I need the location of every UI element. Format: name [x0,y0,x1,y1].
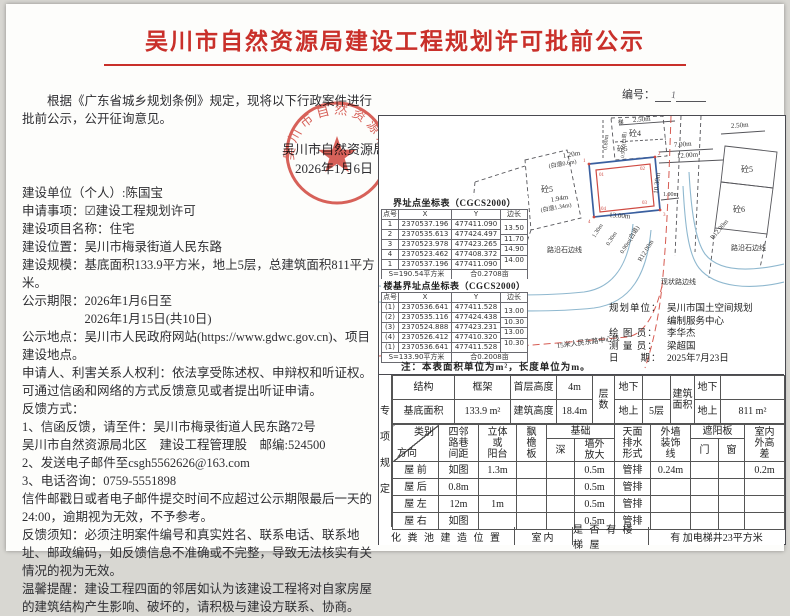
table-title: 楼基界址点坐标表（CGCS2000） [381,279,528,292]
cell: 10.30 [501,318,527,329]
col-header: 遮阳板 [691,425,745,439]
title-underline [104,64,686,66]
cell: 0.2m [745,462,785,479]
cell: 4 [382,250,399,260]
field-line: 吴川市自然资源局北区 建设工程管理股 邮编:524500 [22,436,380,454]
dim-label: 13.00m [609,211,631,220]
table-footer: S=190.54平方米 合0.2708亩 [382,270,528,280]
cell [651,479,691,496]
cell: 18.4m [557,400,593,424]
point-label: 01 [599,173,605,178]
col-header: 深 [547,439,575,462]
septic-stairs-row: 化 粪 池 建 造 位 置 室内 是 否 有 楼 梯 屋 有 加电梯井23平方米 [379,527,784,545]
cell: 2 [382,230,399,240]
cell [547,462,575,479]
cell: 477424.497 [452,230,501,240]
field-line: 2026年1月15日(共10日) [22,310,380,328]
stairs-label: 是 否 有 楼 梯 屋 [573,527,649,545]
scanned-announcement-document: { "page": { "title": "吴川市自然资源局建设工程规划许可批前… [0,0,790,558]
cell: 2370523.462 [399,250,452,260]
col-header: 外墙 装饰 线 [651,425,691,462]
cell: 2370537.196 [399,260,452,270]
spec-row: 屋 后0.8m0.5m管排 [393,479,785,496]
cell: 2370535.116 [399,313,452,323]
dim-label: 0.80m [603,134,610,150]
spec-side-label: 专 项 规 定 [379,375,392,527]
cell: 1 [382,220,399,230]
cell [517,496,547,513]
septic-value: 室内 [515,527,573,545]
col-header: 点号 [382,210,399,220]
cell: 477411.528 [452,343,501,353]
cell: 1 [382,260,399,270]
cell [517,462,547,479]
dim-label: 1.00m [663,192,679,198]
field-line: 公示期限：2026年1月6日至 [22,292,380,310]
cell: 13.50 [501,224,527,235]
table-title: 界址点坐标表（CGCS2000） [381,196,528,209]
cell: 477424.438 [452,313,501,323]
cell: 2370537.196 [399,220,452,230]
stairs-value: 有 加电梯井23平方米 [649,527,784,545]
dim-label: 2.50m [731,121,750,130]
info-value: 李华杰 [667,328,696,341]
dim-label: 1.20m [562,149,581,160]
col-header: 边长 [501,210,528,220]
cell: 13.00 [501,328,527,339]
curb-line-right [689,172,784,269]
cell [719,496,745,513]
cell: 477423.265 [452,240,501,250]
cell: 3 [382,240,399,250]
edge-length-column: 13.50 11.70 14.90 14.00 [501,220,528,270]
boundary-coordinate-table: 界址点坐标表（CGCS2000） 点号 X Y 边长 1 2370537.196… [381,196,528,280]
cell [745,496,785,513]
cell: (1) [382,303,399,313]
field-line: 温馨提醒：建设工程四面的邻居如认为该建设工程将对自家房屋的建筑结构产生影响、破坏… [22,580,380,616]
cell: 管排 [615,462,651,479]
cell: 477411.090 [452,260,501,270]
dim-label: 7.00m [674,140,693,149]
dim-label: 0.30m [606,231,619,247]
cell [651,496,691,513]
cell [719,479,745,496]
field-line: 申请事项：☑建设工程规划许可 [22,202,380,220]
intro-paragraph: 根据《广东省城乡规划条例》规定，现将以下行政案件进行批前公示，公开征询意见。 [22,92,380,128]
cell: 4m [557,376,593,400]
cell: 结构 [393,376,455,400]
col-header: X [399,293,452,303]
cell: 2370523.978 [399,240,452,250]
cell: 5层 [643,400,671,424]
label-building: 砼4 [629,128,641,138]
foundation-coordinate-table: 楼基界址点坐标表（CGCS2000） 点号 X Y 边长 (1) 2370536… [381,279,528,363]
cell: (4) [382,333,399,343]
field-line: 建设单位（个人）:陈国宝 [22,184,380,202]
cell: (2) [382,313,399,323]
cell: 477411.528 [452,303,501,313]
area-total-mu: 合0.2708亩 [452,270,528,280]
cell: 2370535.613 [399,230,452,240]
cell: 如图 [439,462,479,479]
col-header: 点号 [382,293,399,303]
spec-row: 屋 左12m1m0.5m管排 [393,496,785,513]
cell: 133.9 m² [455,400,511,424]
cell: 0.8m [439,479,479,496]
info-value: 梁超国 [667,341,696,354]
cell: 地下 [695,376,721,400]
cell: 1m [479,496,517,513]
point-label: 03 [642,201,648,206]
cell: 地下 [615,376,643,400]
cell: 0.5m [575,462,615,479]
info-label: 绘 图 员： [609,328,667,341]
cell: 2370524.888 [399,323,452,333]
col-header: 飘 檐 板 [517,425,547,462]
cell: 1.3m [479,462,517,479]
info-label: 测 量 员： [609,341,667,354]
cell: 10.30 [501,339,527,349]
info-value: 编制服务中心 [667,316,724,329]
spec-detail-table: 类别 方向 四邻 路巷 间距 立体 或 阳台 飘 檐 板 基础 天面 排水 形式… [392,424,785,530]
col-header: 窗 [719,439,745,462]
cell [745,479,785,496]
label-building: 砼6 [733,204,745,214]
point-label: 02 [640,167,646,172]
cell: 477423.231 [452,323,501,333]
col-header: Y [452,293,501,303]
cell: (3) [382,323,399,333]
cell: 14.00 [501,256,527,266]
label-building: 砼5 [741,164,753,174]
dim-label: 12.00m [677,150,699,159]
cell [517,479,547,496]
cell [721,376,785,400]
label-curb-left: 路沿石边线 [547,245,582,254]
area-total: S=190.54平方米 [382,270,452,280]
cell [691,462,719,479]
surveyor-info: 规划单位：吴川市国土空间规划 编制服务中心 绘 图 员：李华杰 测 量 员：梁超… [609,303,783,366]
info-label [609,316,667,329]
cell: 477408.372 [452,250,501,260]
cell: 2370536.641 [399,343,452,353]
point-label: 1 [583,159,586,164]
dim-label: 0.90m(白退) [618,224,641,255]
field-line: 可通过信函和网络的方式反馈意见或者提出听证申请。 [22,382,380,400]
cell: (1) [382,343,399,353]
dim-label: 10.30m [652,172,662,194]
field-line: 建设规模：基底面积133.9平方米，地上5层，总建筑面积811平方米。 [22,256,380,292]
col-header: 边长 [501,293,528,303]
page-title: 吴川市自然资源局建设工程规划许可批前公示 [6,22,784,56]
field-line: 建设位置：吴川市梅录街道人民东路 [22,238,380,256]
cell: 建筑 面积 [671,376,695,424]
col-header: 室内 外高 差 [745,425,785,462]
point-label: 4 [588,220,591,225]
field-line: 反馈须知：必须注明案件编号和真实姓名、联系电话、联系地址、邮政编码，如反馈信息不… [22,526,380,580]
diagonal-header-cell: 类别 方向 [393,425,439,462]
spec-summary-table: 结构 框架 首层高度 4m 层 数 地下 建筑 面积 地下 基底 [392,375,785,424]
info-value: 吴川市国土空间规划 [667,303,753,316]
col-header: 天面 排水 形式 [615,425,651,462]
cell [547,496,575,513]
point-label: 3 [663,213,666,218]
field-line: 2、发送电子邮件至csgh5562626@163.com [22,454,380,472]
cell: 框架 [455,376,511,400]
label-building: 砼5 [541,184,553,194]
cell: 层 数 [593,376,615,424]
cell: 0.24m [651,462,691,479]
cell: 管排 [615,479,651,496]
table-row: 1 2370537.196 477411.090 13.50 11.70 14.… [382,220,528,230]
col-header: 墙外 放大 [575,439,615,462]
cell [691,496,719,513]
table-row: (1) 2370536.641 477411.528 13.00 10.30 1… [382,303,528,313]
cell [719,462,745,479]
field-line: 3、电话咨询：0759-5551898 [22,472,380,490]
field-line: 1、信函反馈，请至件：吴川市梅录街道人民东路72号 [22,418,380,436]
septic-label: 化 粪 池 建 造 位 置 [379,527,515,545]
cell: 屋 左 [393,496,439,513]
col-header: 门 [691,439,719,462]
cell: 13.00 [501,307,527,318]
field-line: 公示地点：吴川市人民政府网站(https://www.gdwc.gov.cn)、… [22,328,380,364]
announcement-body: 根据《广东省城乡规划条例》规定，现将以下行政案件进行批前公示，公开征询意见。 吴… [22,92,380,128]
doc-number: 编号：1 [622,86,706,102]
cell: 0.5m [575,496,615,513]
spec-table: 专 项 规 定 结构 框架 首层高度 4m 层 数 地下 建筑 面积 [379,374,784,545]
info-label: 规划单位： [609,303,667,316]
cell: 14.90 [501,245,527,256]
cell: 12m [439,496,479,513]
cell: 477410.320 [452,333,501,343]
cell: 0.5m [575,479,615,496]
cell [479,479,517,496]
radius-label: R12.00m [709,218,730,241]
field-line: 反馈方式： [22,400,380,418]
field-line: 申请人、利害关系人权利：依法享受陈述权、申辩权和听证权。 [22,364,380,382]
col-header: X [399,210,452,220]
col-header: 四邻 路巷 间距 [439,425,479,462]
info-value: 2025年7月23日 [667,353,729,366]
col-header: Y [452,210,501,220]
cell: 477411.090 [452,220,501,230]
label-curb-right: 路沿石边线 [731,243,766,252]
cell: 屋 前 [393,462,439,479]
point-label: 04 [601,207,607,212]
field-line: 信件邮戳日或者电子邮件提交时间不应超过公示期限最后一天的24:00，逾期视为无效… [22,490,380,526]
edge-length-column: 13.00 10.30 13.00 10.30 [501,303,528,353]
label-road-edge: 现状路边线 [661,277,696,286]
cell: 屋 后 [393,479,439,496]
field-line: 建设项目名称：住宅 [22,220,380,238]
spec-row: 屋 前如图1.3m0.5m管排0.24m0.2m [393,462,785,479]
cell: 建筑高度 [511,400,557,424]
label-stair: 梯 [618,118,624,126]
cell [547,479,575,496]
document-page: 吴川市自然资源局建设工程规划许可批前公示 编号：1 根据《广东省城乡规划条例》规… [6,4,784,551]
site-plan-panel: 砼5 砼4 砼5 砼5 砼6 梯 2.50m 0.80m 0.50m(白退) 7… [378,115,786,545]
cell: 管排 [615,496,651,513]
cell [691,479,719,496]
doc-number-label: 编号： [622,89,655,101]
col-header: 基础 [547,425,615,439]
units-note: 注：本表面积单位为m²，长度单位为m。 [401,359,591,373]
cell [643,376,671,400]
cell: 首层高度 [511,376,557,400]
cell: 基底面积 [393,400,455,424]
cell: 11.70 [501,235,527,246]
announcement-fields: 建设单位（个人）:陈国宝 申请事项：☑建设工程规划许可 建设项目名称：住宅 建设… [22,184,380,616]
cell: 2370536.641 [399,303,452,313]
cell: 2370526.412 [399,333,452,343]
dim-label: 1.30m [592,223,605,239]
col-header: 立体 或 阳台 [479,425,517,462]
info-label: 日 期： [609,353,667,366]
cell: 地上 [615,400,643,424]
dim-label: 2.50m [633,116,652,124]
cell: 811 m² [721,400,785,424]
dim-label: 1.94m [550,193,569,204]
cell: 地上 [695,400,721,424]
